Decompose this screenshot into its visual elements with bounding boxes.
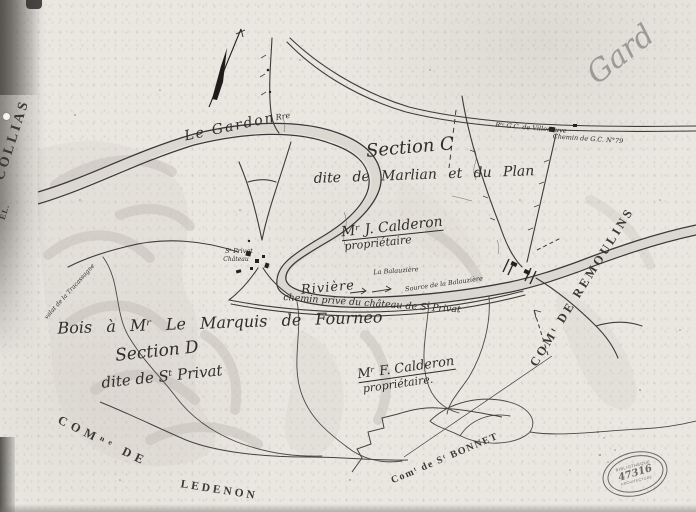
north-arrow-icon — [209, 29, 245, 107]
scan-edge-bottom — [0, 504, 696, 512]
scan-edge-left-top — [0, 0, 40, 95]
paper-hole — [3, 113, 10, 120]
label-chateau-st-privat: Sᵗ Privat — [225, 248, 253, 255]
label-chateau-word: Château — [223, 257, 248, 263]
scan-corner-bottom-left — [0, 437, 15, 512]
river-flow-arrow — [350, 286, 391, 294]
map-sheet: COLLIAS EL. Le Gardon Rre Rᵗᵉ G.C. de Vi… — [0, 0, 696, 512]
scan-notch — [26, 0, 42, 9]
